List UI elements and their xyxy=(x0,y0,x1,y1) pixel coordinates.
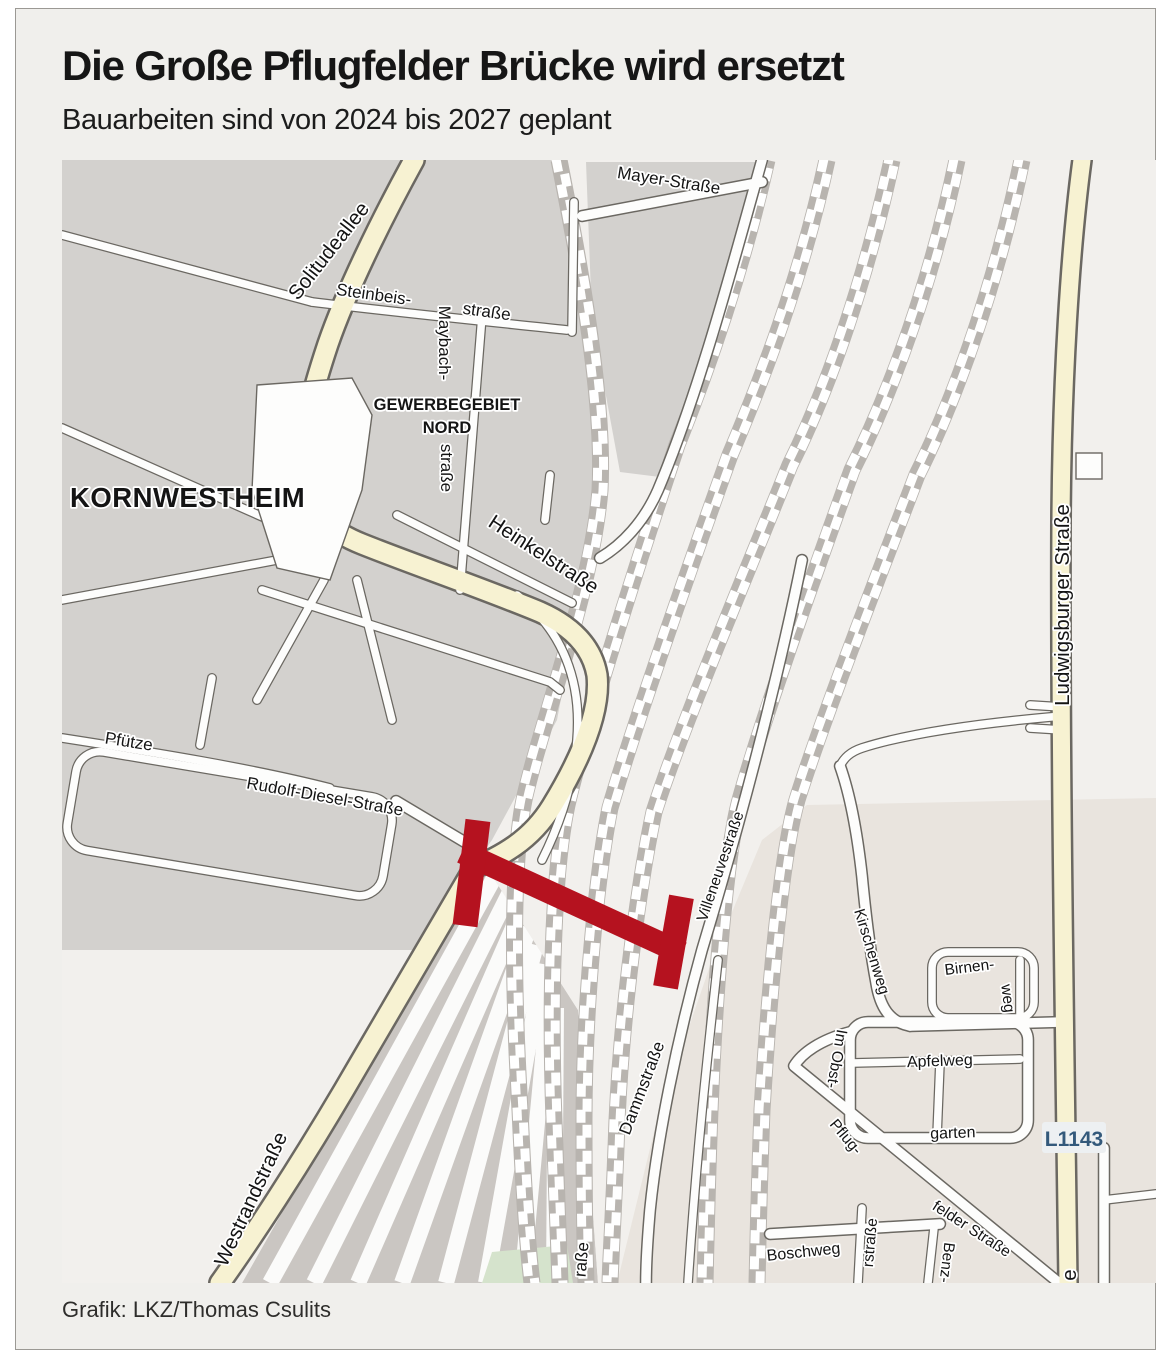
city-label-kornwestheim: KORNWESTHEIM xyxy=(70,482,305,513)
subheadline: Bauarbeiten sind von 2024 bis 2027 gepla… xyxy=(62,104,1102,137)
street-label-garten: garten xyxy=(930,1124,976,1143)
route-badge-label: L1143 xyxy=(1045,1128,1103,1151)
district-label-gewerbegebiet: GEWERBEGEBIET xyxy=(374,396,521,414)
street-label-fragment-e: e xyxy=(1058,1269,1081,1280)
roadside-building xyxy=(1076,453,1102,479)
credit-line: Grafik: LKZ/Thomas Csulits xyxy=(62,1297,331,1323)
map-canvas: L1143 Solitudeallee Steinbeis- straße Ma… xyxy=(62,160,1156,1283)
map-graphic: L1143 Solitudeallee Steinbeis- straße Ma… xyxy=(62,160,1156,1283)
street-label-fragment-rasse: raße xyxy=(571,1241,593,1277)
infographic-page: Die Große Pflugfelder Brücke wird ersetz… xyxy=(0,0,1166,1369)
street-label-ludwigsburger-strasse: Ludwigsburger Straße xyxy=(1051,504,1074,706)
district-label-nord: NORD xyxy=(423,419,472,437)
street-label-maybach-strasse: straße xyxy=(437,444,456,492)
street-label-maybach: Maybach- xyxy=(435,306,454,381)
headline: Die Große Pflugfelder Brücke wird ersetz… xyxy=(62,42,1102,90)
street-label-apfelweg: Apfelweg xyxy=(907,1052,973,1071)
street-label-birnenweg-weg: weg xyxy=(997,982,1017,1013)
route-badge: L1143 xyxy=(1042,1122,1106,1153)
